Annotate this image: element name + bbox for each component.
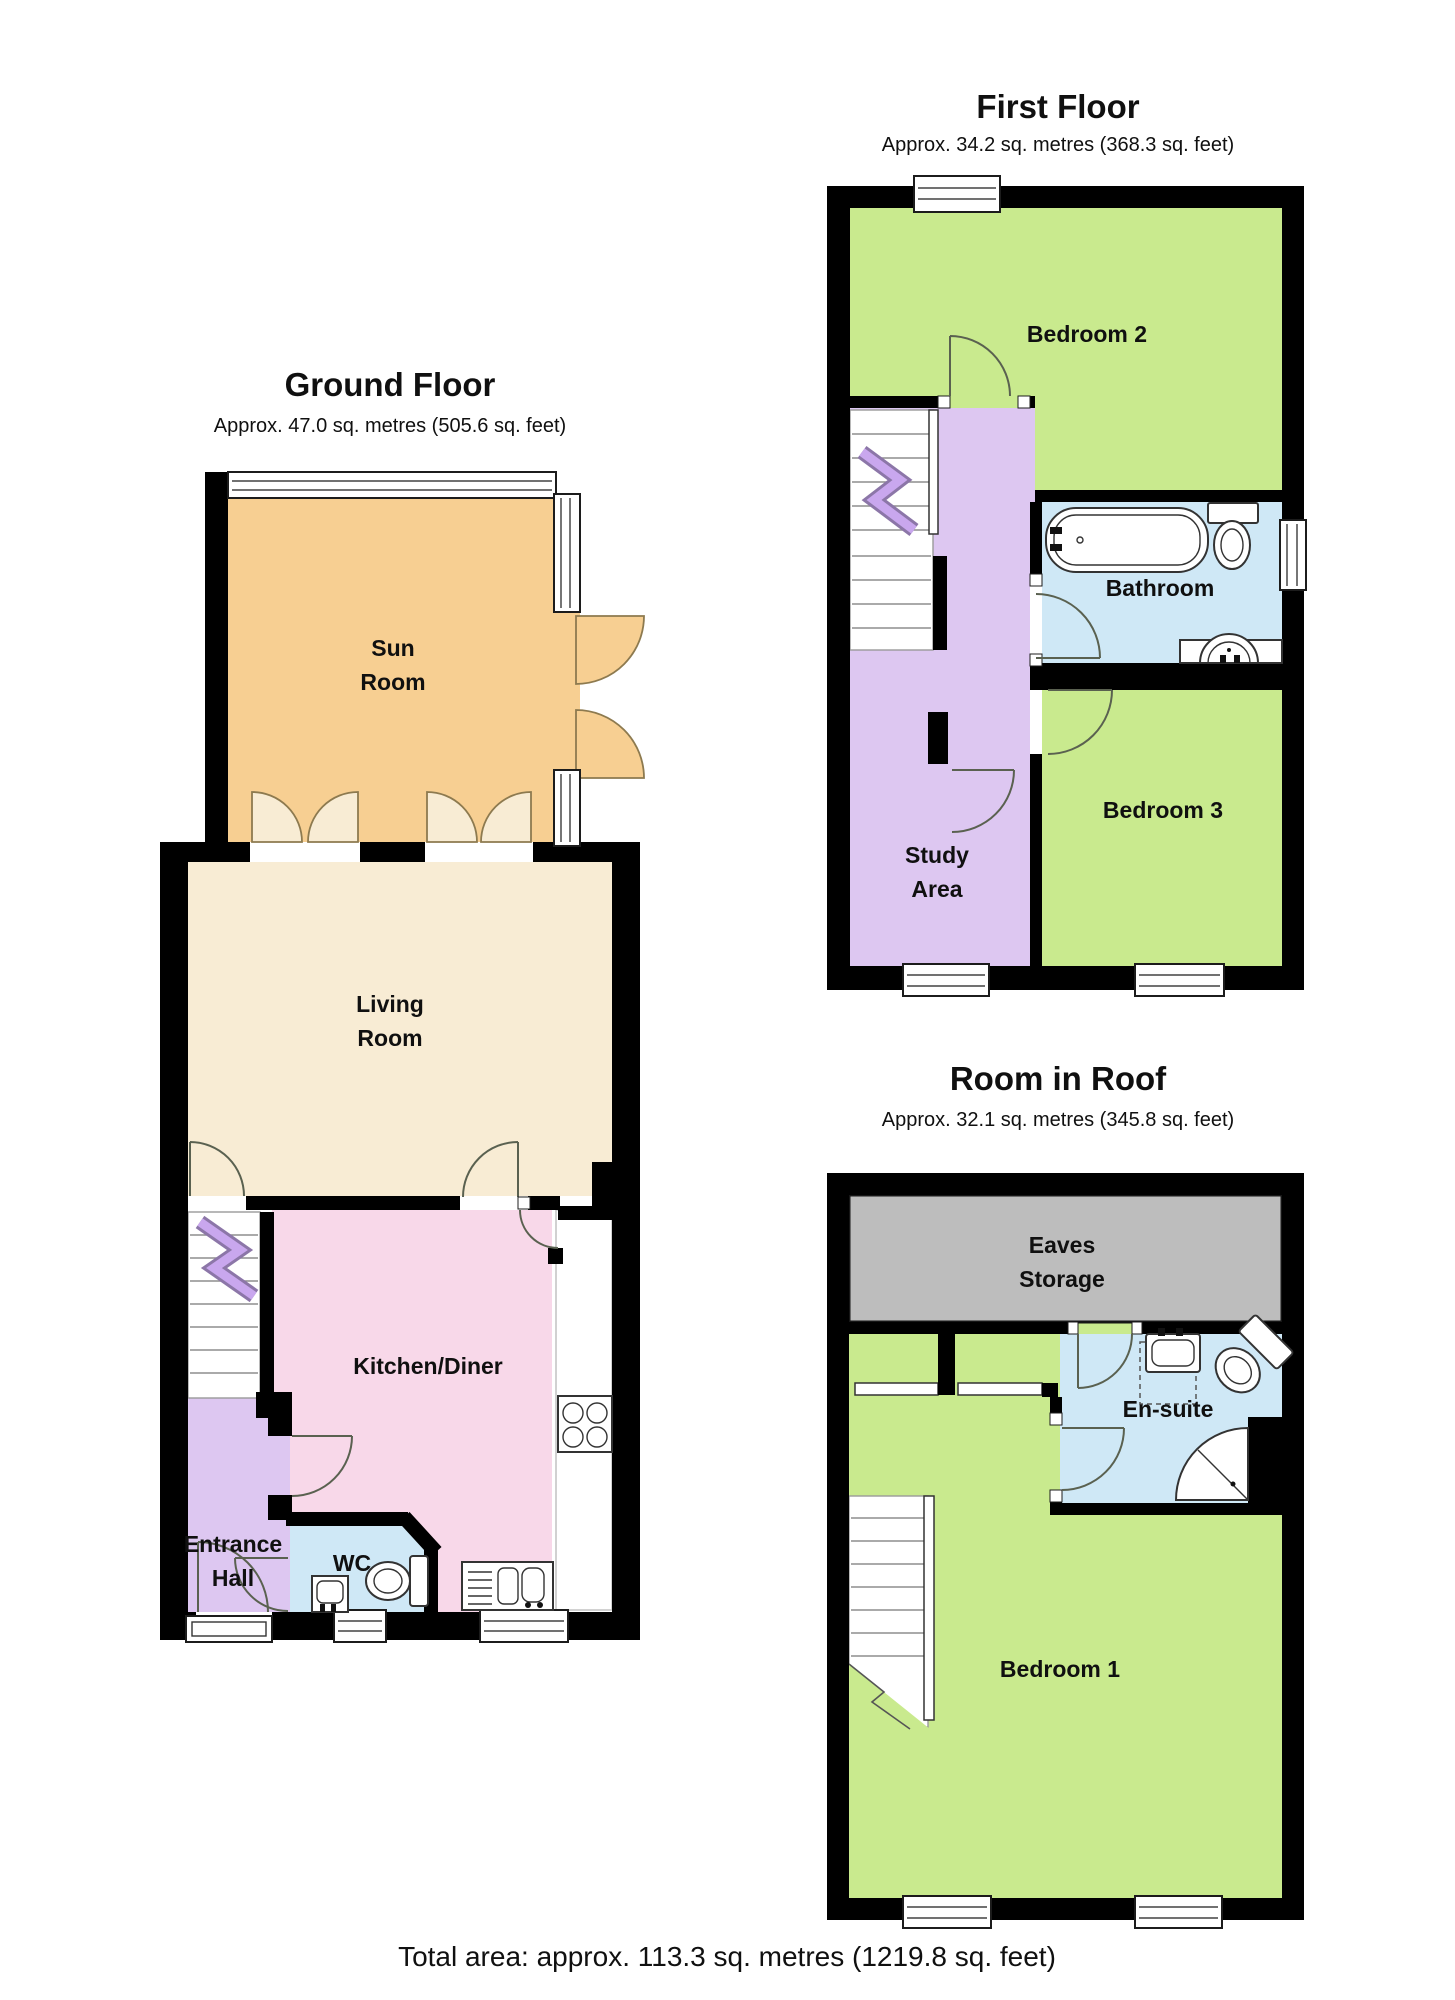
wall	[558, 1206, 612, 1220]
door-threshold	[425, 842, 533, 862]
room-label-living-room: Room	[357, 1025, 422, 1051]
wall	[612, 842, 640, 1640]
wall	[286, 1512, 408, 1526]
room-label-eaves-storage: Storage	[1019, 1266, 1105, 1292]
room-label-entrance-hall: Hall	[212, 1565, 254, 1591]
floorplan-drawing: Ground Floor Approx. 47.0 sq. metres (50…	[0, 0, 1455, 2000]
wall	[1035, 490, 1282, 502]
wall	[849, 1322, 1068, 1334]
room-label-bedroom-3: Bedroom 3	[1103, 797, 1223, 823]
floor-subtitle-roof: Approx. 32.1 sq. metres (345.8 sq. feet)	[882, 1109, 1234, 1131]
wall	[548, 1248, 563, 1264]
door-stop	[1030, 654, 1042, 666]
wall	[827, 1898, 1304, 1920]
french-door-leaf	[576, 616, 644, 684]
floor-subtitle-ground: Approx. 47.0 sq. metres (505.6 sq. feet)	[214, 415, 566, 437]
wall	[260, 1212, 274, 1398]
ground-floor-plan: Ground Floor Approx. 47.0 sq. metres (50…	[160, 366, 644, 1642]
door-stop	[518, 1197, 530, 1209]
wall	[827, 966, 1304, 990]
door-stop	[1030, 574, 1042, 586]
wall	[928, 712, 948, 764]
wall	[827, 186, 850, 990]
wall	[933, 556, 947, 650]
room-label-wc: WC	[333, 1550, 371, 1576]
door-stop	[938, 396, 950, 408]
wall	[592, 1162, 612, 1206]
total-area-text: Total area: approx. 113.3 sq. metres (12…	[398, 1941, 1056, 1972]
door-stop	[1132, 1322, 1142, 1334]
roof-staircase	[849, 1496, 934, 1729]
french-door-leaf	[576, 710, 644, 778]
wall	[246, 1196, 460, 1210]
landing-railing	[958, 1383, 1042, 1395]
room-label-eaves-storage: Eaves	[1029, 1232, 1096, 1258]
floor-subtitle-first: Approx. 34.2 sq. metres (368.3 sq. feet)	[882, 134, 1234, 156]
room-label-bathroom: Bathroom	[1106, 575, 1215, 601]
bathtub-fixture	[1046, 508, 1208, 572]
room-label-kitchen-diner: Kitchen/Diner	[353, 1353, 503, 1379]
room-label-study-area: Study	[905, 842, 969, 868]
room-label-bedroom-2: Bedroom 2	[1027, 321, 1147, 347]
wall	[1050, 1503, 1282, 1515]
wall	[827, 1173, 849, 1920]
first-floor-plan: First Floor Approx. 34.2 sq. metres (368…	[827, 88, 1306, 996]
wall	[205, 472, 228, 844]
floor-title-first: First Floor	[976, 88, 1139, 125]
wall	[827, 186, 1304, 208]
ground-floor-staircase	[188, 1212, 260, 1398]
chimney-breast	[1248, 1417, 1282, 1512]
floorplan-page: Ground Floor Approx. 47.0 sq. metres (50…	[0, 0, 1455, 2000]
room-label-study-area: Area	[911, 876, 962, 902]
room-label-living-room: Living	[356, 991, 424, 1017]
wc-sink-fixture	[312, 1576, 348, 1612]
wall	[1030, 754, 1042, 966]
kitchen-sink-fixture	[462, 1562, 553, 1610]
door-stop	[1068, 1322, 1078, 1334]
room-label-sun-room: Room	[360, 669, 425, 695]
wall	[1030, 502, 1042, 586]
door-stop	[1050, 1490, 1062, 1502]
hob-fixture	[558, 1396, 612, 1452]
floor-title-roof: Room in Roof	[950, 1060, 1167, 1097]
wall	[1042, 1383, 1058, 1397]
wall	[1030, 663, 1282, 690]
room-eaves-storage	[849, 1195, 1282, 1322]
wall	[850, 396, 938, 408]
room-label-entrance-hall: Entrance	[184, 1531, 282, 1557]
room-label-bedroom-1: Bedroom 1	[1000, 1656, 1120, 1682]
wall	[938, 1332, 955, 1395]
wall	[268, 1400, 292, 1436]
wall	[160, 842, 188, 1640]
room-bedroom-3	[1042, 690, 1282, 966]
door-threshold	[250, 842, 360, 862]
wall	[528, 1196, 560, 1210]
landing-railing	[855, 1383, 938, 1395]
first-floor-staircase	[850, 410, 938, 650]
room-label-sun-room: Sun	[371, 635, 414, 661]
door-stop	[1018, 396, 1030, 408]
door-stop	[1050, 1413, 1062, 1425]
floor-title-ground: Ground Floor	[285, 366, 496, 403]
wall	[1282, 1173, 1304, 1920]
wall	[827, 1173, 1304, 1195]
room-label-en-suite: En-suite	[1123, 1396, 1214, 1422]
room-in-roof-plan: Room in Roof Approx. 32.1 sq. metres (34…	[827, 1060, 1304, 1928]
